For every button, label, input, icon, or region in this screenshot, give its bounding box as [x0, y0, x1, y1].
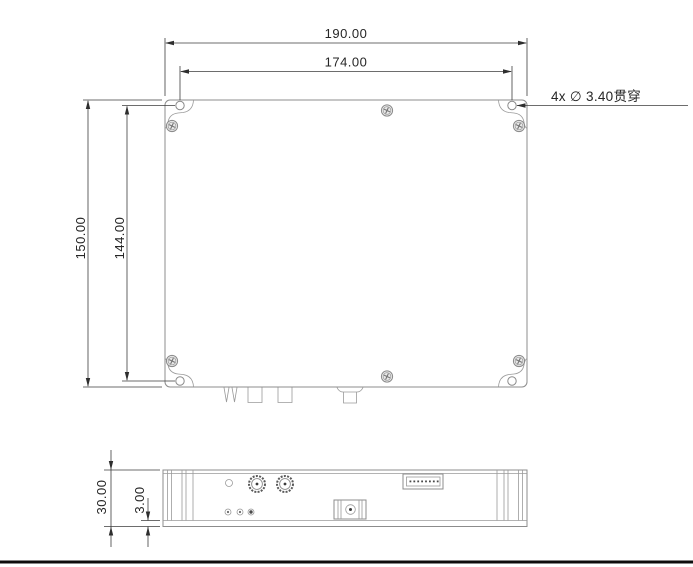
- screw-icon: [166, 355, 177, 366]
- mounting-hole-bottom-right: [508, 377, 516, 385]
- fiber-pigtail-pin: [224, 388, 229, 403]
- dimension-body-thickness: 30.00: [94, 450, 160, 547]
- sma-connector: [249, 476, 265, 492]
- dimension-base-plate: 3.00: [132, 486, 160, 547]
- led-dot: [239, 511, 241, 513]
- arrowhead: [146, 527, 150, 536]
- sma-center-pin: [284, 483, 287, 486]
- led-dot: [227, 511, 229, 513]
- arrowhead: [518, 41, 527, 45]
- jack-pin: [349, 508, 352, 511]
- connector-recess: [337, 388, 363, 393]
- header-pin: [429, 481, 431, 483]
- mounting-hole-top-left: [176, 101, 184, 109]
- connector-stem: [344, 392, 357, 403]
- header-pin: [410, 481, 412, 483]
- pin-header-connector: [403, 474, 443, 489]
- arrowhead: [180, 69, 189, 73]
- dim-label-hole-spacing-height: 144.00: [112, 217, 127, 260]
- dim-label-hole-spacing-width: 174.00: [325, 55, 368, 70]
- drawing-sheet: 190.00 174.00 150.00 144.00 4x ∅ 3.40贯穿: [0, 0, 693, 567]
- right-flange: [497, 470, 523, 521]
- arrowhead: [503, 69, 512, 73]
- arrowhead: [86, 100, 90, 109]
- dim-label-overall-height: 150.00: [73, 217, 88, 260]
- sma-connector: [277, 476, 293, 492]
- engineering-drawing: 190.00 174.00 150.00 144.00 4x ∅ 3.40贯穿: [0, 0, 693, 567]
- header-pin: [425, 481, 427, 483]
- enclosure-outline: [165, 100, 527, 387]
- sheet-border-line: [0, 561, 693, 564]
- header-pin: [417, 481, 419, 483]
- left-flange: [168, 470, 194, 521]
- top-view: [165, 100, 527, 403]
- power-jack: [334, 500, 366, 519]
- arrowhead: [125, 372, 129, 381]
- arrowhead: [125, 106, 129, 115]
- screw-icon: [513, 120, 524, 131]
- mounting-hole-bottom-left: [176, 377, 184, 385]
- dim-label-body-thickness: 30.00: [94, 479, 109, 514]
- panel-hole: [226, 480, 233, 487]
- indicator-leds: [225, 509, 254, 515]
- side-view: [163, 470, 527, 527]
- dimension-hole-spacing-width: 174.00: [180, 55, 512, 101]
- arrowhead: [165, 41, 174, 45]
- dim-label-base-plate: 3.00: [132, 486, 147, 513]
- screw-icon: [381, 371, 392, 382]
- hole-callout: 4x ∅ 3.40贯穿: [517, 89, 689, 108]
- hole-note-label: 4x ∅ 3.40贯穿: [551, 89, 641, 104]
- arrowhead: [86, 378, 90, 387]
- screw-icon: [381, 105, 392, 116]
- screw-icon: [513, 355, 524, 366]
- header-pin: [421, 481, 423, 483]
- fiber-pigtail-pin: [232, 388, 237, 403]
- header-inner: [407, 477, 441, 486]
- header-pin: [437, 481, 439, 483]
- mounting-hole-top-right: [508, 101, 516, 109]
- dimension-hole-spacing-height: 144.00: [112, 106, 175, 382]
- side-outline: [163, 470, 527, 527]
- arrowhead: [109, 527, 113, 536]
- bottom-tab-connector: [248, 388, 262, 403]
- header-pin: [413, 481, 415, 483]
- arrowhead: [517, 103, 526, 107]
- led-dot: [249, 510, 252, 513]
- dim-label-overall-width: 190.00: [325, 26, 368, 41]
- header-pin: [433, 481, 435, 483]
- sma-center-pin: [256, 483, 259, 486]
- arrowhead: [109, 461, 113, 470]
- screw-icon: [166, 120, 177, 131]
- bottom-tab-connector: [278, 388, 292, 403]
